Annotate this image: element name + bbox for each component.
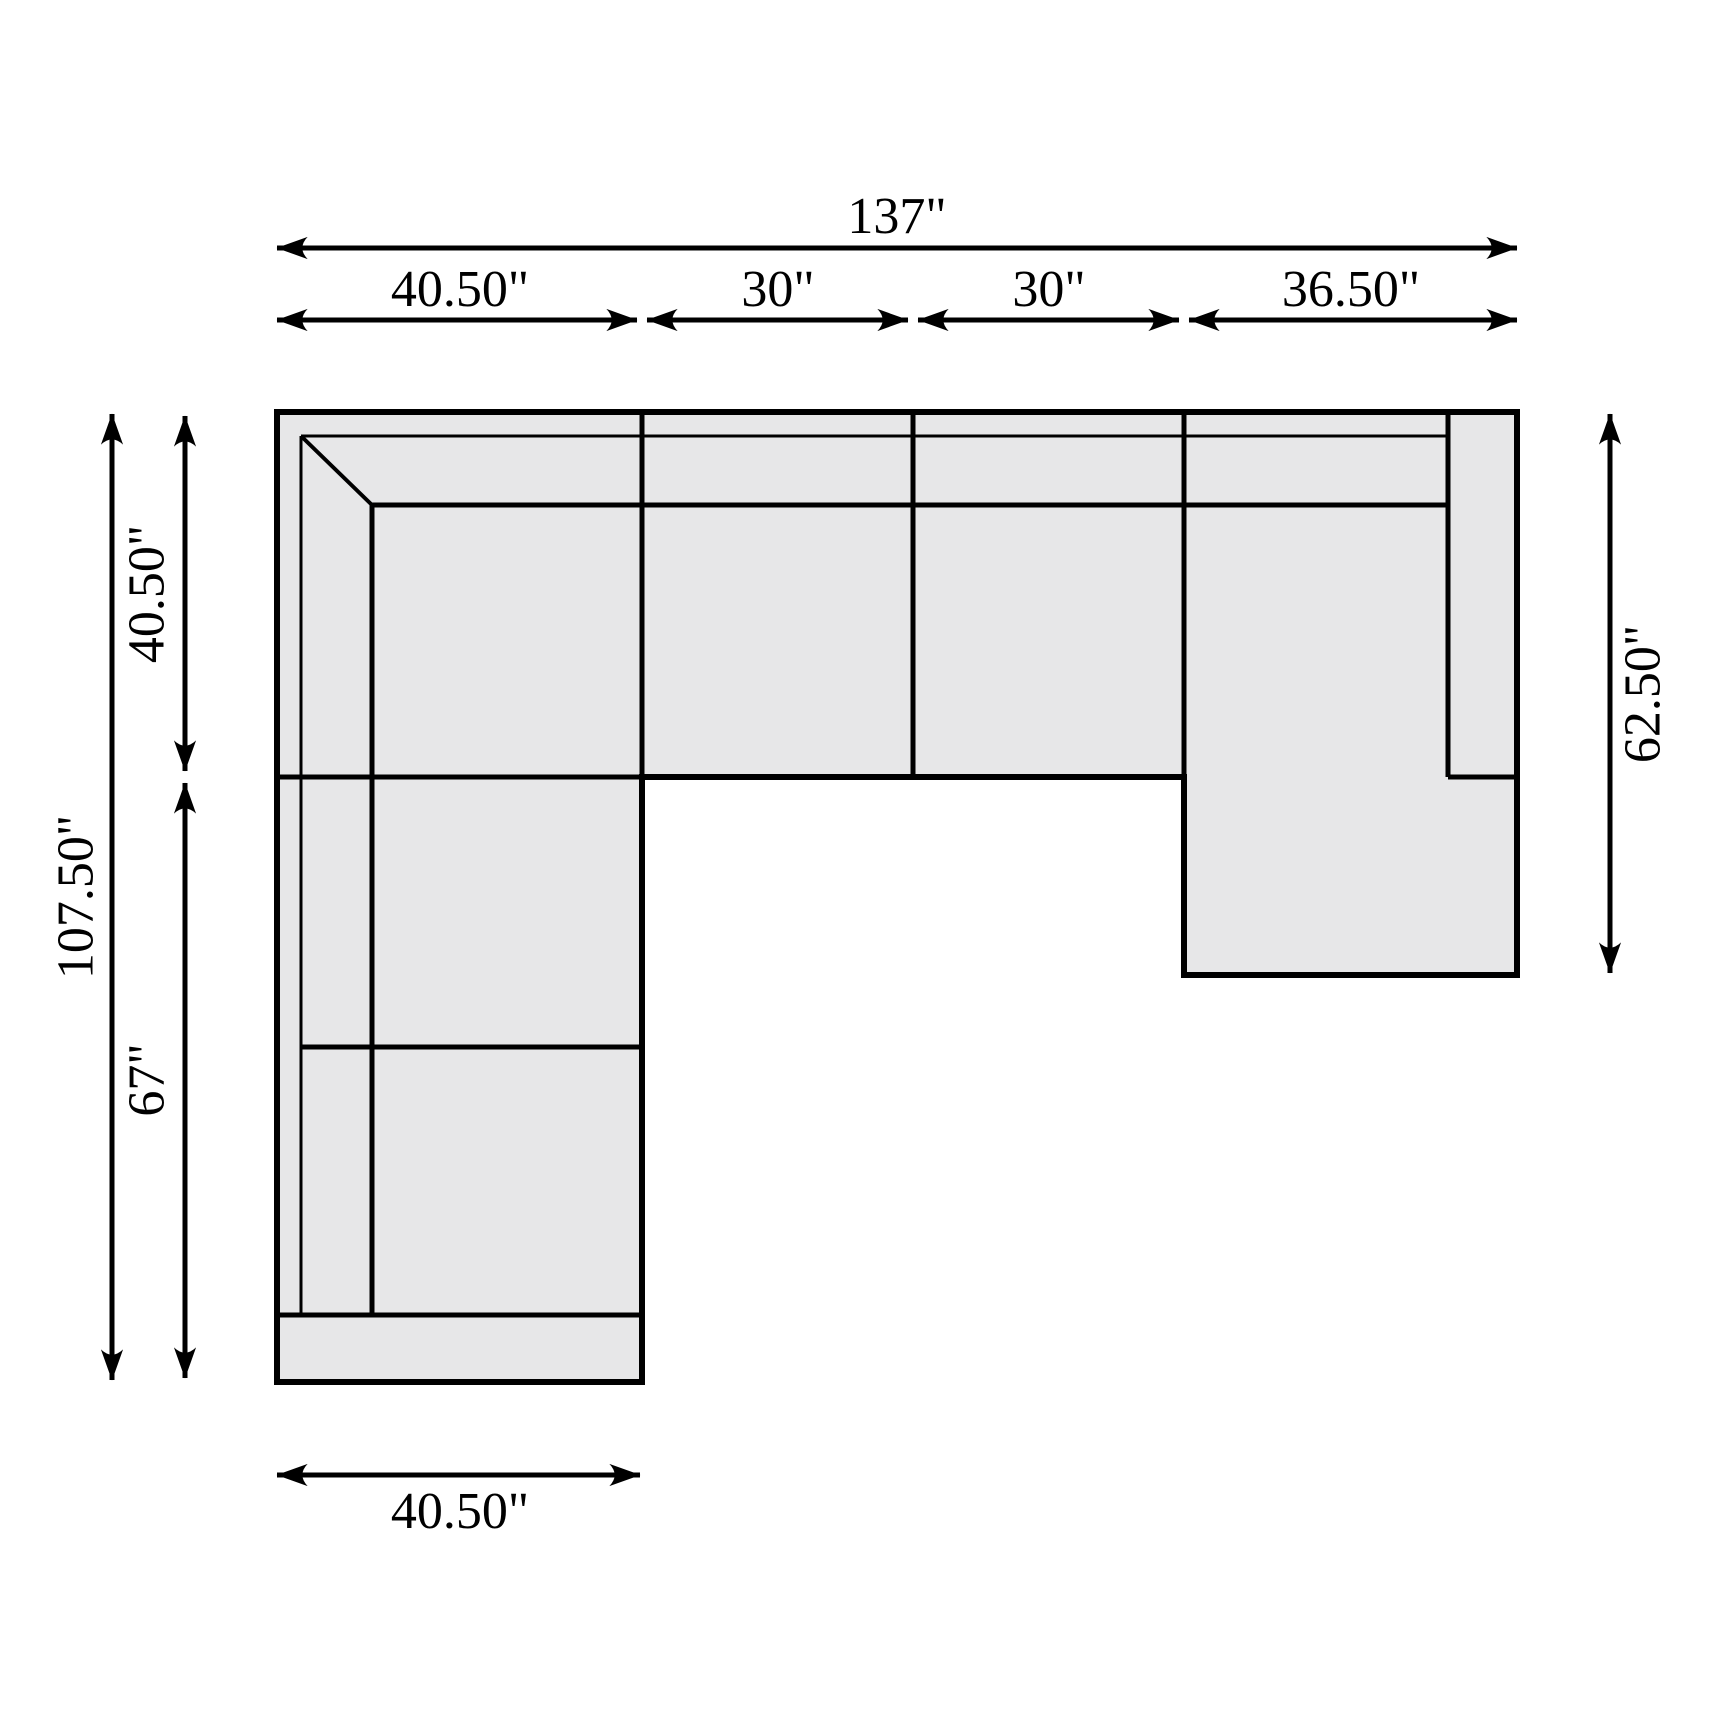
label-top-segment-2: 30" — [741, 261, 814, 318]
label-left-segment-2: 67" — [119, 1043, 176, 1116]
sofa-dimension-diagram: 137" 40.50" 30" 30" 36.50" 107.50" 40.50… — [0, 0, 1726, 1726]
sofa-body — [277, 412, 1517, 1382]
label-left-segment-1: 40.50" — [119, 525, 176, 663]
label-chaise-depth-right: 62.50" — [1615, 625, 1672, 763]
label-overall-width: 137" — [847, 188, 946, 245]
label-top-segment-1: 40.50" — [391, 261, 529, 318]
diagram-svg: 137" 40.50" 30" 30" 36.50" 107.50" 40.50… — [0, 0, 1726, 1726]
label-overall-depth-left: 107.50" — [48, 815, 105, 979]
label-bottom-width: 40.50" — [391, 1483, 529, 1540]
label-top-segment-3: 30" — [1012, 261, 1085, 318]
label-top-segment-4: 36.50" — [1282, 261, 1420, 318]
sofa-outer-outline — [277, 412, 1517, 1382]
